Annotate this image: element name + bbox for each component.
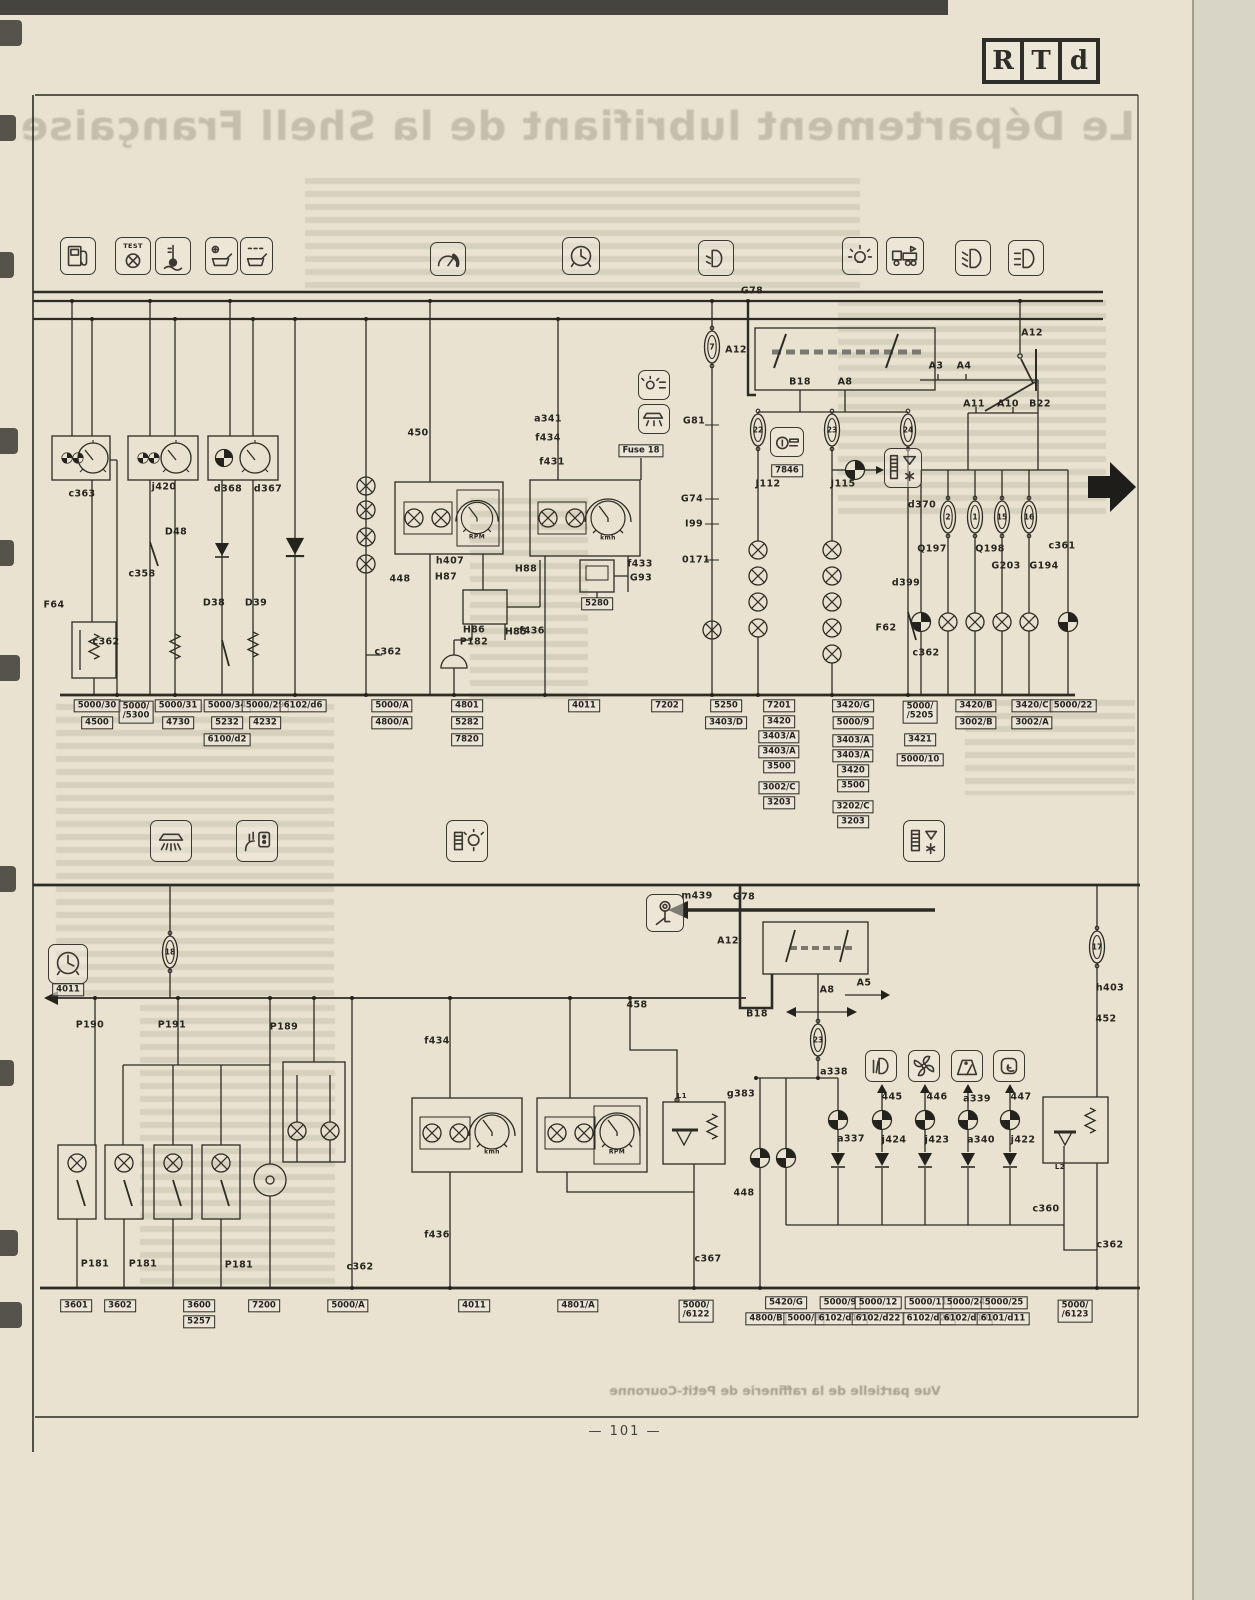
wire-label: d399 [892,578,920,589]
wire-label: P181 [225,1260,253,1271]
wire-label: c362 [374,647,401,658]
connector-code: 5420/G [765,1296,807,1309]
connector-code: 3420 [763,715,795,728]
connector-code: 7846 [771,464,803,477]
wire-label: f434 [424,1036,450,1047]
connector-code: 5000/25 [981,1296,1028,1309]
connector-code: 6101/d11 [977,1312,1030,1325]
wire-label: L2 [1055,1163,1065,1171]
wire-label: TEST [123,242,143,250]
showthrough-caption: Vue partielle de la raffinerie de Petit-… [560,1383,990,1398]
wire-label: G78 [733,892,755,903]
wire-label: kmh [484,1149,500,1156]
connector-code: 3600 [183,1299,215,1312]
connector-code: 5000/ /5300 [119,701,154,724]
label-overlay: G78A12A3A4A11A10B22A12B18A8J112J115G81G7… [0,0,1255,1600]
wire-label: P182 [460,637,488,648]
wire-label: L1 [677,1092,687,1100]
fuse-number: 23 [813,1036,823,1045]
connector-code: 3601 [60,1299,92,1312]
connector-code: 3403/A [758,730,799,743]
wire-label: j424 [882,1135,907,1146]
wire-label: 458 [626,1000,647,1011]
wire-label: h407 [436,556,464,567]
wire-label: H86 [463,625,485,636]
wire-label: G203 [991,561,1020,572]
fuse-number: 2 [945,513,950,522]
wire-label: G78 [741,286,763,297]
connector-code: 4232 [249,716,281,729]
wire-label: G93 [630,573,652,584]
wire-label: f431 [539,457,565,468]
wire-label: A8 [820,985,835,996]
connector-code: 6102/d22 [852,1312,905,1325]
connector-code: 3202/C [833,800,874,813]
fuse-number: 1 [972,513,977,522]
wire-label: m439 [681,891,712,902]
connector-code: 5000/A [371,699,412,712]
connector-code: 5257 [183,1315,215,1328]
connector-code: 3002/C [759,781,800,794]
wire-label: I99 [685,519,703,530]
connector-code: 3602 [104,1299,136,1312]
connector-code: 5000/30 [74,699,121,712]
wire-label: P181 [81,1259,109,1270]
connector-code: 5000/10 [897,753,944,766]
fuse-number: 18 [165,948,175,957]
wire-label: G194 [1029,561,1058,572]
fuse-number: 23 [827,426,837,435]
connector-code: 3500 [763,760,795,773]
wire-label: kmh [600,535,616,542]
connector-code: 4011 [568,699,600,712]
connector-code: 6100/d2 [204,733,251,746]
fuse-number: 7 [709,343,714,352]
wire-label: c361 [1048,541,1075,552]
wire-label: J115 [831,479,856,490]
connector-code: 4011 [52,983,84,996]
connector-code: 4800/B [745,1312,786,1325]
connector-code: 4800/A [371,716,412,729]
connector-code: 3203 [763,796,795,809]
wire-label: J112 [756,479,781,490]
wire-label: h403 [1096,983,1124,994]
wire-label: 448 [733,1188,754,1199]
connector-code: 5232 [211,716,243,729]
connector-code: 3420/G [832,699,874,712]
wire-label: B18 [789,377,811,388]
wire-label: c362 [912,648,939,659]
wire-label: c362 [1096,1240,1123,1251]
wire-label: j420 [152,482,177,493]
wire-label: D38 [203,598,225,609]
wire-label: A5 [857,978,872,989]
wire-label: D48 [165,527,187,538]
connector-code: 3421 [904,733,936,746]
wire-label: A8 [838,377,853,388]
connector-code: 5000/ /5205 [903,701,938,724]
wire-label: 445 [881,1092,902,1103]
connector-code: 5000/ /6122 [679,1300,714,1323]
wire-label: A12 [1021,328,1043,339]
wire-label: H87 [435,572,457,583]
fuse-number: 24 [903,426,913,435]
wire-label: B18 [746,1009,768,1020]
wire-label: a341 [534,414,562,425]
wire-label: f434 [535,433,561,444]
wire-label: F62 [876,623,897,634]
wire-label: G74 [681,494,703,505]
connector-code: 3420 [837,764,869,777]
wire-label: a338 [820,1067,848,1078]
wire-label: f436 [424,1230,450,1241]
scanned-page: Le Département lubrifiant de la Shell Fr… [0,0,1255,1600]
connector-code: 3420/B [955,699,996,712]
connector-code: 5280 [581,597,613,610]
wire-label: a340 [967,1135,995,1146]
connector-code: 5250 [710,699,742,712]
wire-label: 446 [926,1092,947,1103]
wire-label: c363 [68,489,95,500]
wire-label: 0171 [682,555,710,566]
wire-label: H88 [515,564,537,575]
wire-label: 448 [389,574,410,585]
wire-label: 450 [407,428,428,439]
fuse-number: 22 [753,426,763,435]
connector-code: 3403/D [705,716,747,729]
wire-label: P190 [76,1020,104,1031]
wire-label: D39 [245,598,267,609]
connector-code: 3002/B [955,716,996,729]
connector-code: 3420/C [1012,699,1053,712]
wire-label: c360 [1032,1204,1059,1215]
fuse-number: 17 [1092,943,1102,952]
wire-label: Q197 [917,544,947,555]
connector-code: 5000/A [327,1299,368,1312]
wire-label: j422 [1011,1135,1036,1146]
wire-label: a339 [963,1094,991,1105]
wire-label: G81 [683,416,705,427]
connector-code: Fuse 18 [618,444,663,457]
connector-code: 3403/A [832,734,873,747]
wire-label: B22 [1029,399,1051,410]
connector-code: 7200 [248,1299,280,1312]
wire-label: Q198 [975,544,1005,555]
connector-code: 4500 [81,716,113,729]
wire-label: f436 [519,626,545,637]
connector-code: 7201 [763,699,795,712]
connector-code: 3203 [837,815,869,828]
connector-code: 4011 [458,1299,490,1312]
connector-code: 3403/A [758,745,799,758]
connector-code: 3500 [837,779,869,792]
wire-label: 452 [1095,1014,1116,1025]
wire-label: d370 [908,500,936,511]
wire-label: RPM [469,534,485,541]
wire-label: F64 [44,600,65,611]
fuse-number: 15 [997,513,1007,522]
wire-label: d367 [254,484,282,495]
wire-label: d368 [214,484,242,495]
connector-code: 5000/12 [855,1296,902,1309]
connector-code: 4801 [451,699,483,712]
wire-label: A4 [957,361,972,372]
fuse-number: 16 [1024,513,1034,522]
connector-code: 5000/22 [1050,699,1097,712]
connector-code: 6102/d6 [280,699,327,712]
wire-label: A10 [997,399,1019,410]
wire-label: c367 [694,1254,721,1265]
wire-label: A12 [717,936,739,947]
connector-code: 7820 [451,733,483,746]
wire-label: RPM [609,1149,625,1156]
connector-code: 5000/31 [155,699,202,712]
wire-label: 447 [1010,1092,1031,1103]
connector-code: 3403/A [832,749,873,762]
connector-code: 5000/9 [833,716,874,729]
connector-code: 3002/A [1011,716,1052,729]
connector-code: 5000/ /6123 [1058,1300,1093,1323]
wire-label: A12 [725,345,747,356]
wire-label: g383 [727,1089,755,1100]
wire-label: c358 [128,569,155,580]
wire-label: c362 [346,1262,373,1273]
wire-label: f433 [627,559,653,570]
connector-code: 4801/A [557,1299,598,1312]
connector-code: 7202 [651,699,683,712]
wire-label: P181 [129,1259,157,1270]
wire-label: A3 [929,361,944,372]
page-number: — 101 — [565,1424,685,1439]
wire-label: j423 [925,1135,950,1146]
connector-code: 4730 [162,716,194,729]
wire-label: a337 [837,1134,865,1145]
wire-label: A11 [963,399,985,410]
wire-label: c362 [92,637,119,648]
connector-code: 5282 [451,716,483,729]
wire-label: P191 [158,1020,186,1031]
wire-label: P189 [270,1022,298,1033]
